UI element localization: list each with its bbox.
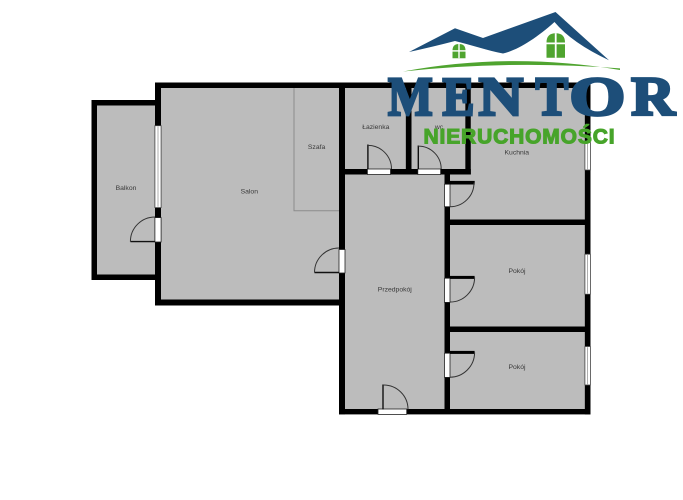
svg-text:Przedpokój: Przedpokój xyxy=(378,286,412,293)
svg-text:T: T xyxy=(535,67,568,127)
svg-text:Pokój: Pokój xyxy=(508,364,525,371)
svg-text:M: M xyxy=(388,67,433,128)
svg-text:Szafa: Szafa xyxy=(308,144,326,151)
svg-text:Pokój: Pokój xyxy=(508,268,525,275)
svg-text:E: E xyxy=(442,67,474,128)
svg-text:Balkon: Balkon xyxy=(116,185,137,192)
svg-text:N: N xyxy=(479,66,523,127)
svg-text:NIERUCHOMOŚCI: NIERUCHOMOŚCI xyxy=(424,125,616,149)
svg-text:O: O xyxy=(569,66,625,127)
svg-text:R: R xyxy=(631,66,676,128)
svg-text:Salon: Salon xyxy=(241,189,259,196)
svg-text:Łazienka: Łazienka xyxy=(362,124,389,131)
svg-text:Kuchnia: Kuchnia xyxy=(505,149,530,156)
